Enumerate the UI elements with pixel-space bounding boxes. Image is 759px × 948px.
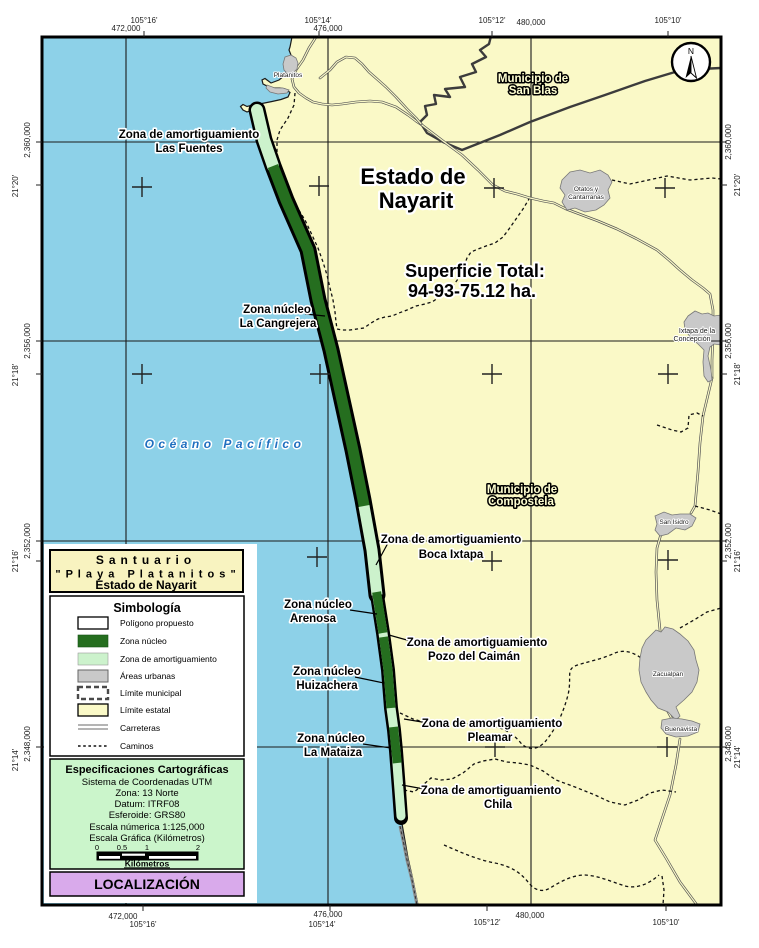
svg-text:21°20': 21°20'	[733, 173, 742, 196]
svg-text:Zona de amortiguamiento: Zona de amortiguamiento	[421, 785, 562, 797]
svg-text:21°14': 21°14'	[11, 748, 20, 771]
svg-text:Municipio de: Municipio de	[487, 484, 557, 496]
svg-text:1: 1	[145, 843, 149, 852]
svg-text:Zona de amortiguamiento: Zona de amortiguamiento	[407, 637, 548, 649]
svg-text:Carreteras: Carreteras	[120, 723, 160, 733]
svg-text:105°10': 105°10'	[655, 16, 682, 25]
svg-text:0: 0	[95, 843, 99, 852]
svg-text:Zona: 13 Norte: Zona: 13 Norte	[115, 788, 178, 799]
svg-text:Escala númerica 1:125,000: Escala númerica 1:125,000	[89, 822, 204, 833]
svg-text:Las Fuentes: Las Fuentes	[155, 143, 222, 155]
svg-text:La Cangrejera: La Cangrejera	[240, 318, 317, 330]
svg-text:Zona núcleo: Zona núcleo	[284, 599, 352, 611]
svg-text:San Isidro: San Isidro	[659, 519, 689, 526]
svg-text:105°14': 105°14'	[305, 16, 332, 25]
svg-text:Zona núcleo: Zona núcleo	[243, 304, 311, 316]
svg-text:2,360,000: 2,360,000	[23, 122, 32, 158]
svg-text:Compostela: Compostela	[488, 496, 554, 508]
svg-text:Datum: ITRF08: Datum: ITRF08	[115, 799, 180, 810]
svg-text:480,000: 480,000	[517, 18, 546, 27]
svg-text:Áreas urbanas: Áreas urbanas	[120, 671, 175, 681]
svg-text:94-93-75.12 ha.: 94-93-75.12 ha.	[408, 281, 536, 301]
svg-text:Límite estatal: Límite estatal	[120, 705, 171, 715]
svg-text:Océano Pacífico: Océano Pacífico	[145, 437, 306, 451]
svg-text:480,000: 480,000	[516, 911, 545, 920]
svg-text:Zona de amortiguamiento: Zona de amortiguamiento	[119, 129, 260, 141]
svg-text:Ixtapa de la: Ixtapa de la	[679, 328, 715, 335]
svg-text:2,360,000: 2,360,000	[724, 124, 733, 160]
svg-text:Boca Ixtapa: Boca Ixtapa	[419, 549, 484, 561]
svg-text:105°16': 105°16'	[130, 920, 157, 929]
svg-text:Pleamar: Pleamar	[468, 732, 513, 744]
svg-text:La Mataiza: La Mataiza	[304, 747, 363, 759]
svg-text:2,356,000: 2,356,000	[23, 323, 32, 359]
svg-text:21°16': 21°16'	[11, 549, 20, 572]
svg-text:2,348,000: 2,348,000	[23, 726, 32, 762]
svg-text:21°14': 21°14'	[733, 745, 742, 768]
svg-text:21°16': 21°16'	[733, 549, 742, 572]
svg-text:105°12': 105°12'	[479, 16, 506, 25]
svg-text:105°10': 105°10'	[653, 918, 680, 927]
svg-text:Pozo del Caimán: Pozo del Caimán	[428, 651, 520, 663]
svg-text:Kilómetros: Kilómetros	[125, 859, 170, 869]
svg-text:Superficie Total:: Superficie Total:	[405, 261, 545, 281]
svg-text:105°14': 105°14'	[309, 920, 336, 929]
svg-text:Especificaciones Cartográficas: Especificaciones Cartográficas	[65, 764, 228, 776]
svg-text:2,352,000: 2,352,000	[724, 523, 733, 559]
svg-text:Santuario: Santuario	[96, 553, 196, 567]
svg-text:0.5: 0.5	[117, 843, 127, 852]
svg-text:2,356,000: 2,356,000	[724, 323, 733, 359]
svg-text:Zona núcleo: Zona núcleo	[120, 636, 167, 646]
svg-text:2,348,000: 2,348,000	[724, 726, 733, 762]
svg-text:476,000: 476,000	[314, 24, 343, 33]
svg-text:Zona núcleo: Zona núcleo	[293, 666, 361, 678]
svg-text:Concepción: Concepción	[674, 336, 711, 343]
svg-text:2,352,000: 2,352,000	[23, 523, 32, 559]
svg-text:21°18': 21°18'	[733, 362, 742, 385]
svg-text:Caminos: Caminos	[120, 741, 154, 751]
svg-text:Huizachera: Huizachera	[296, 680, 358, 692]
svg-text:Polígono propuesto: Polígono propuesto	[120, 618, 194, 628]
svg-text:Nayarit: Nayarit	[379, 188, 454, 213]
svg-text:Municipio de: Municipio de	[498, 73, 568, 85]
svg-text:Simbología: Simbología	[113, 601, 181, 615]
svg-text:Sistema de Coordenadas UTM: Sistema de Coordenadas UTM	[82, 777, 213, 788]
svg-text:Zona de amortiguamiento: Zona de amortiguamiento	[381, 534, 522, 546]
svg-text:Chila: Chila	[484, 799, 513, 811]
svg-text:21°18': 21°18'	[11, 363, 20, 386]
svg-text:Buenavista: Buenavista	[665, 726, 698, 733]
svg-text:472,000: 472,000	[112, 24, 141, 33]
svg-text:LOCALIZACIÓN: LOCALIZACIÓN	[94, 875, 200, 892]
svg-text:Arenosa: Arenosa	[290, 613, 337, 625]
svg-text:N: N	[688, 46, 694, 56]
svg-text:Cantarranas: Cantarranas	[568, 194, 605, 201]
svg-text:105°12': 105°12'	[474, 918, 501, 927]
svg-text:Estado de Nayarit: Estado de Nayarit	[95, 578, 196, 592]
svg-text:San Blas: San Blas	[509, 85, 558, 97]
svg-text:Zona núcleo: Zona núcleo	[297, 733, 365, 745]
svg-text:Zona de amortiguamiento: Zona de amortiguamiento	[422, 718, 563, 730]
svg-text:Zona de amortiguamiento: Zona de amortiguamiento	[120, 654, 217, 664]
svg-text:Otatos y: Otatos y	[574, 186, 599, 193]
svg-text:Esferoide: GRS80: Esferoide: GRS80	[109, 810, 186, 821]
svg-text:21°20': 21°20'	[11, 174, 20, 197]
svg-text:Límite municipal: Límite municipal	[120, 688, 182, 698]
svg-text:Estado de: Estado de	[360, 164, 465, 189]
svg-text:2: 2	[196, 843, 200, 852]
svg-text:Platanitos: Platanitos	[274, 72, 303, 79]
svg-text:105°16': 105°16'	[131, 16, 158, 25]
svg-text:476,000: 476,000	[314, 910, 343, 919]
svg-text:Zacualpan: Zacualpan	[653, 671, 684, 678]
